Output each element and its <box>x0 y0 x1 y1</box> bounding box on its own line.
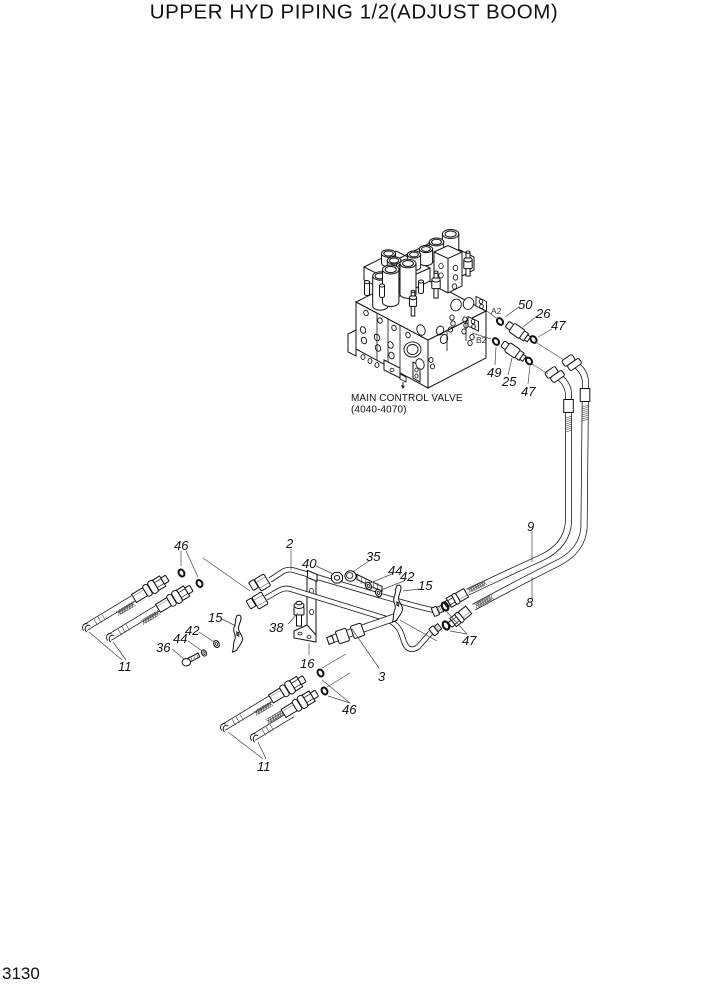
svg-text:11: 11 <box>118 659 132 674</box>
svg-text:8: 8 <box>526 595 534 610</box>
svg-text:2: 2 <box>285 536 294 551</box>
svg-text:9: 9 <box>527 519 534 534</box>
svg-text:36: 36 <box>156 640 171 655</box>
svg-text:42: 42 <box>400 569 415 584</box>
svg-text:11: 11 <box>257 759 271 774</box>
svg-text:49: 49 <box>487 365 501 380</box>
svg-text:3: 3 <box>378 669 386 684</box>
svg-text:25: 25 <box>501 374 517 389</box>
svg-text:A2: A2 <box>491 306 502 316</box>
svg-text:38: 38 <box>269 620 284 635</box>
svg-text:B2: B2 <box>476 335 487 345</box>
svg-text:MAIN CONTROL VALVE: MAIN CONTROL VALVE <box>351 393 463 404</box>
svg-text:46: 46 <box>174 538 189 553</box>
svg-text:UPPER HYD PIPING 1/2(ADJUST BO: UPPER HYD PIPING 1/2(ADJUST BOOM) <box>150 1 558 24</box>
svg-text:26: 26 <box>535 306 551 321</box>
svg-text:(4040-4070): (4040-4070) <box>351 405 407 416</box>
svg-text:16: 16 <box>300 656 315 671</box>
svg-text:47: 47 <box>521 384 536 399</box>
svg-text:35: 35 <box>366 549 381 564</box>
svg-text:3130: 3130 <box>2 964 40 983</box>
svg-text:46: 46 <box>342 702 357 717</box>
svg-text:40: 40 <box>302 556 317 571</box>
svg-text:50: 50 <box>518 297 533 312</box>
svg-text:15: 15 <box>208 610 223 625</box>
svg-text:47: 47 <box>551 318 566 333</box>
svg-text:15: 15 <box>418 578 433 593</box>
svg-text:47: 47 <box>462 633 477 648</box>
svg-text:44: 44 <box>173 631 187 646</box>
